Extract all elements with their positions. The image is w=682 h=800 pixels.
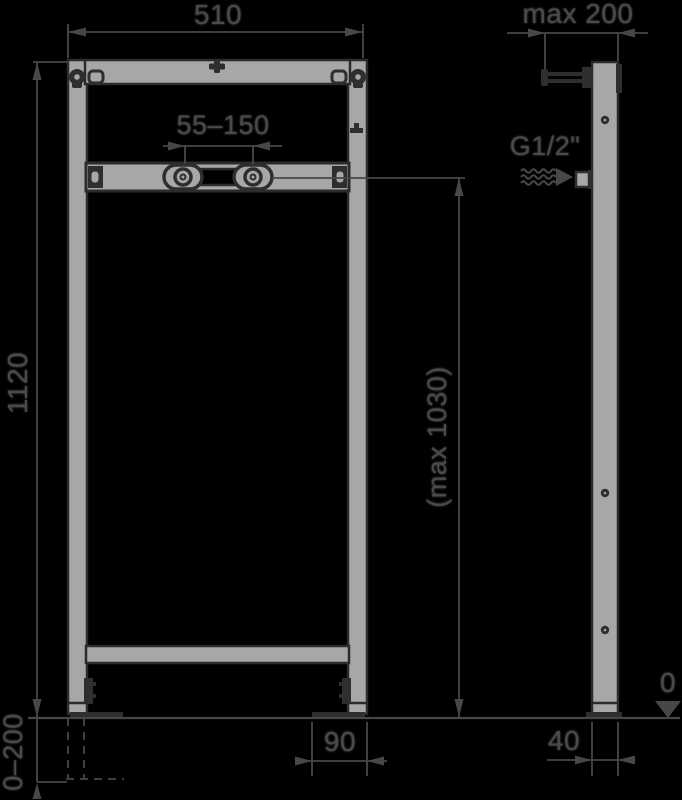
side-rail-back-tab xyxy=(616,64,622,93)
dimension-0-200 xyxy=(33,718,68,799)
left-tap-fitting xyxy=(164,165,202,189)
dimension-55-150 xyxy=(163,142,282,165)
floor-level-label: 0 xyxy=(660,669,676,697)
connection-height-label: (max 1030) xyxy=(423,366,451,508)
dimension-1120 xyxy=(33,62,69,717)
water-connection-label: G1/2" xyxy=(510,132,581,160)
extended-leg-dashed-outline xyxy=(66,718,124,779)
profile-depth-label: 40 xyxy=(548,727,580,755)
technical-drawing-canvas: 510 max 200 55–150 1120 (max 1030) 0–200… xyxy=(0,0,682,800)
front-view xyxy=(68,60,367,719)
front-right-rail xyxy=(348,60,367,714)
foot-plate-label: 90 xyxy=(324,728,356,756)
leg-adjustment-label: 0–200 xyxy=(0,713,27,791)
frame-height-label: 1120 xyxy=(4,352,32,414)
right-tap-fitting xyxy=(234,165,272,189)
wall-distance-label: max 200 xyxy=(523,0,634,28)
drawing-linework xyxy=(0,0,682,800)
tap-fixing-crossbar xyxy=(86,163,349,191)
crossbar-opening xyxy=(199,169,236,185)
frame-width-label: 510 xyxy=(194,1,242,29)
water-flow-arrow-icon xyxy=(521,168,573,186)
lower-crossbar xyxy=(86,646,349,663)
water-connection-fitting xyxy=(576,170,593,189)
side-rail xyxy=(592,62,618,714)
floor-datum-icon xyxy=(655,701,681,718)
wall-bracket xyxy=(541,67,593,88)
dimension-max-200 xyxy=(507,29,648,70)
tap-spacing-label: 55–150 xyxy=(176,111,269,139)
front-left-rail xyxy=(68,60,87,714)
